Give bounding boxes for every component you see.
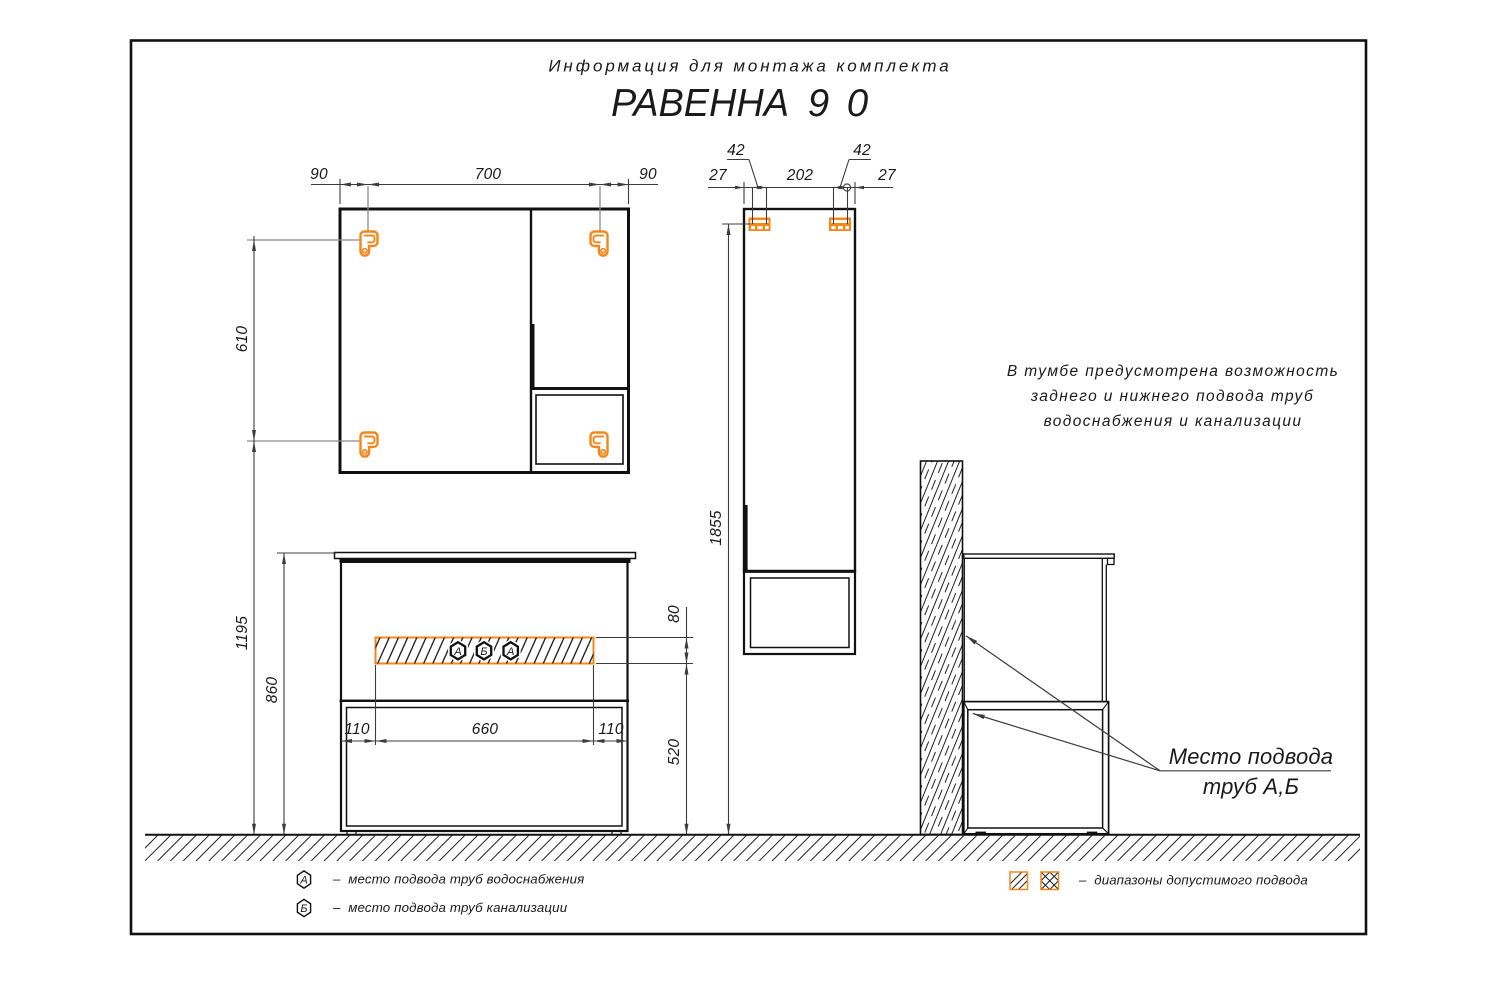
svg-text:Информация для монтажа комплек: Информация для монтажа комплекта [548, 57, 951, 76]
svg-text:42: 42 [727, 142, 745, 159]
svg-text:660: 660 [472, 721, 499, 738]
svg-text:27: 27 [877, 167, 897, 184]
svg-text:9: 9 [808, 82, 829, 125]
svg-text:А: А [506, 646, 514, 658]
svg-text:труб А,Б: труб А,Б [1203, 774, 1299, 799]
svg-text:90: 90 [639, 166, 657, 183]
svg-text:– место подвода труб канализа: – место подвода труб канализации [332, 900, 568, 915]
svg-text:Место подвода: Место подвода [1169, 744, 1333, 769]
svg-text:заднего и нижнего подвода: заднего и нижнего подвода труб [1030, 388, 1314, 405]
svg-text:1855: 1855 [708, 510, 725, 545]
svg-text:700: 700 [475, 166, 502, 183]
svg-text:В тумбе предусмотрена возмо: В тумбе предусмотрена возможность [1007, 363, 1339, 380]
svg-text:Б: Б [300, 903, 307, 915]
svg-text:1195: 1195 [234, 616, 251, 650]
svg-text:РАВЕННА: РАВЕННА [611, 82, 789, 125]
svg-text:0: 0 [847, 82, 869, 125]
svg-text:Б: Б [480, 646, 487, 658]
svg-text:860: 860 [264, 677, 281, 704]
svg-text:202: 202 [786, 167, 814, 184]
svg-text:водоснабжения и канализации: водоснабжения и канализации [1044, 413, 1303, 430]
svg-text:110: 110 [598, 721, 623, 738]
svg-text:110: 110 [344, 721, 369, 738]
svg-text:– диапазоны допустимого подво: – диапазоны допустимого подвода [1078, 873, 1308, 888]
svg-text:90: 90 [310, 166, 328, 183]
svg-text:42: 42 [853, 142, 871, 159]
svg-text:– место подвода труб водоснаб: – место подвода труб водоснабжения [332, 872, 584, 887]
svg-text:А: А [299, 874, 307, 886]
svg-text:520: 520 [666, 739, 683, 766]
svg-text:А: А [453, 646, 461, 658]
svg-text:80: 80 [666, 605, 683, 623]
svg-text:27: 27 [708, 167, 728, 184]
svg-text:610: 610 [234, 326, 251, 353]
